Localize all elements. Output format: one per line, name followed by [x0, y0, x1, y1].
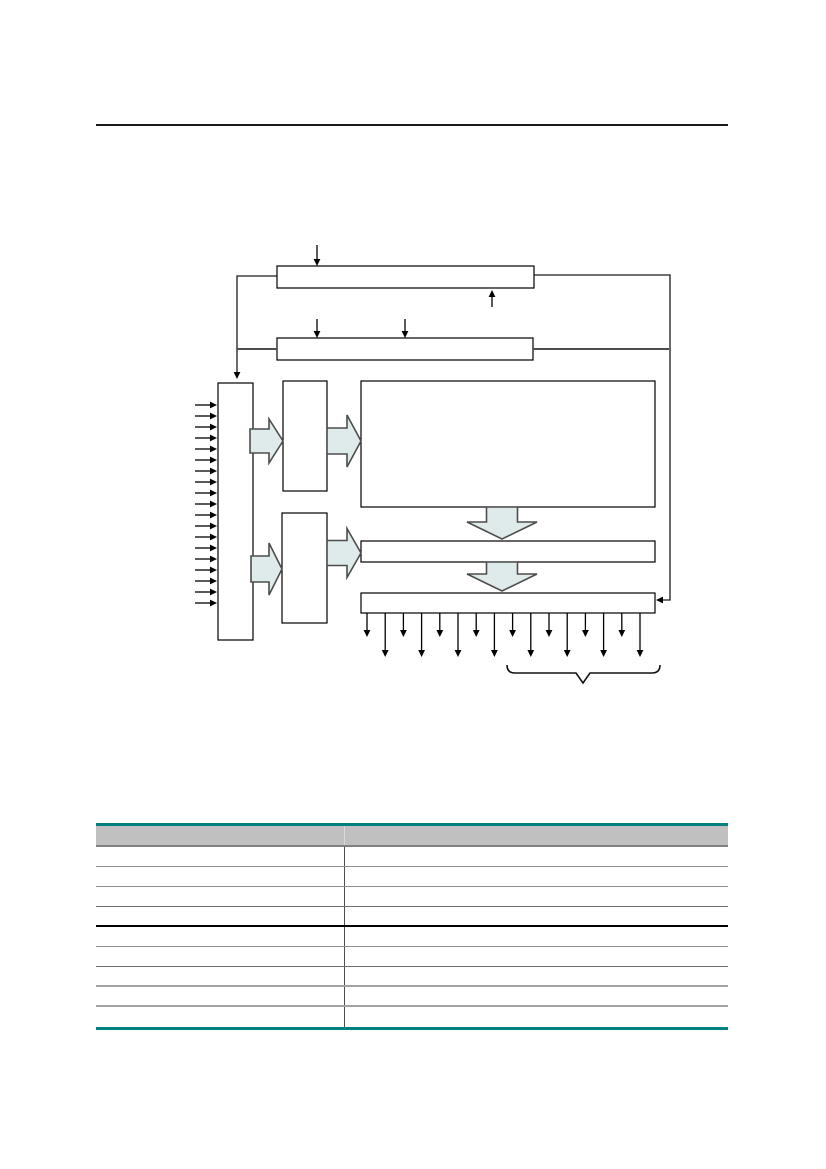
data-table [96, 823, 728, 1030]
arrowhead-right-icon [210, 534, 217, 541]
arrowhead-down-icon [314, 259, 321, 266]
arrowhead-down-icon [455, 650, 462, 657]
table-row [96, 887, 728, 907]
table-cell-left [96, 987, 345, 1005]
arrowhead-right-icon [210, 501, 217, 508]
arrowhead-right-icon [210, 435, 217, 442]
arrowhead-right-icon [210, 589, 217, 596]
arrowhead-down-icon [436, 630, 443, 637]
arrowhead-left-icon [656, 597, 663, 604]
table-bottom-border [96, 1027, 728, 1030]
arrowhead-right-icon [210, 556, 217, 563]
arrowhead-down-icon [418, 650, 425, 657]
arrowhead-right-icon [210, 479, 217, 486]
table-cell-left [96, 927, 345, 946]
arrowhead-right-icon [210, 424, 217, 431]
block-arrow-middle-to-output [467, 562, 537, 591]
arrowhead-right-icon [210, 523, 217, 530]
arrowhead-down-icon [491, 650, 498, 657]
table-cell-left [96, 887, 345, 906]
block-arrow-upper-to-core [327, 415, 361, 467]
arrowhead-right-icon [210, 490, 217, 497]
table-cell-left [96, 947, 345, 966]
arrowhead-down-icon [382, 650, 389, 657]
table-cell-right [345, 847, 728, 866]
block-arrow-input-to-upper [250, 419, 283, 463]
arrowhead-down-icon [473, 630, 480, 637]
arrowhead-right-icon [210, 457, 217, 464]
document-page [0, 0, 826, 1169]
block-arrow-input-to-lower [251, 543, 282, 595]
table-cell-left [96, 867, 345, 886]
table-row [96, 927, 728, 947]
table-header-row [96, 826, 728, 847]
arrowhead-right-icon [210, 402, 217, 409]
table-cell-right [345, 927, 728, 946]
arrowhead-down-icon [402, 331, 409, 338]
arrowhead-down-icon [234, 372, 241, 379]
arrowhead-right-icon [210, 600, 217, 607]
table-row [96, 907, 728, 927]
table-cell-right [345, 867, 728, 886]
connector-top-left-feedback [237, 276, 277, 372]
block-arrow-core-to-middle [467, 507, 537, 539]
arrowhead-right-icon [210, 446, 217, 453]
arrowhead-down-icon [600, 650, 607, 657]
table-row [96, 867, 728, 887]
diagram-box-second-register [277, 338, 533, 360]
diagram-box-wide-middle [361, 541, 655, 562]
arrowhead-up-icon [489, 290, 496, 297]
arrowhead-right-icon [210, 567, 217, 574]
table-cell-right [345, 967, 728, 985]
arrowhead-down-icon [637, 650, 644, 657]
table-cell-right [345, 907, 728, 925]
arrowhead-down-icon [509, 630, 516, 637]
arrowhead-down-icon [364, 630, 371, 637]
diagram-box-top-register [277, 266, 534, 288]
table-cell-right [345, 987, 728, 1005]
arrowhead-down-icon [546, 630, 553, 637]
block-arrow-lower-to-middle [327, 529, 361, 578]
table-cell-left [96, 907, 345, 925]
table-row [96, 847, 728, 867]
arrowhead-down-icon [582, 630, 589, 637]
arrowhead-right-icon [210, 578, 217, 585]
arrowhead-right-icon [210, 468, 217, 475]
table-cell-right [345, 887, 728, 906]
diagram-box-input-column [218, 383, 253, 640]
arrowhead-down-icon [400, 630, 407, 637]
table-cell-right [345, 947, 728, 966]
arrowhead-down-icon [314, 331, 321, 338]
underbrace-icon [507, 665, 660, 683]
diagram-box-upper-small [283, 381, 327, 491]
table-body [96, 847, 728, 1027]
diagram-box-bottom-output [361, 593, 655, 613]
table-row [96, 947, 728, 967]
arrowhead-right-icon [210, 413, 217, 420]
table-cell-right [345, 1007, 728, 1027]
arrowhead-down-icon [618, 630, 625, 637]
table-cell-left [96, 1007, 345, 1027]
table-cell-left [96, 967, 345, 985]
diagram-box-large-core [361, 381, 655, 507]
arrowhead-down-icon [527, 650, 534, 657]
table-row [96, 1007, 728, 1027]
arrowhead-right-icon [210, 512, 217, 519]
diagram-box-lower-small [282, 513, 327, 623]
table-header-left-cell [96, 826, 345, 845]
arrowhead-down-icon [564, 650, 571, 657]
table-header-right-cell [345, 826, 728, 845]
table-cell-left [96, 847, 345, 866]
arrowhead-right-icon [210, 545, 217, 552]
table-row [96, 987, 728, 1007]
table-row [96, 967, 728, 987]
